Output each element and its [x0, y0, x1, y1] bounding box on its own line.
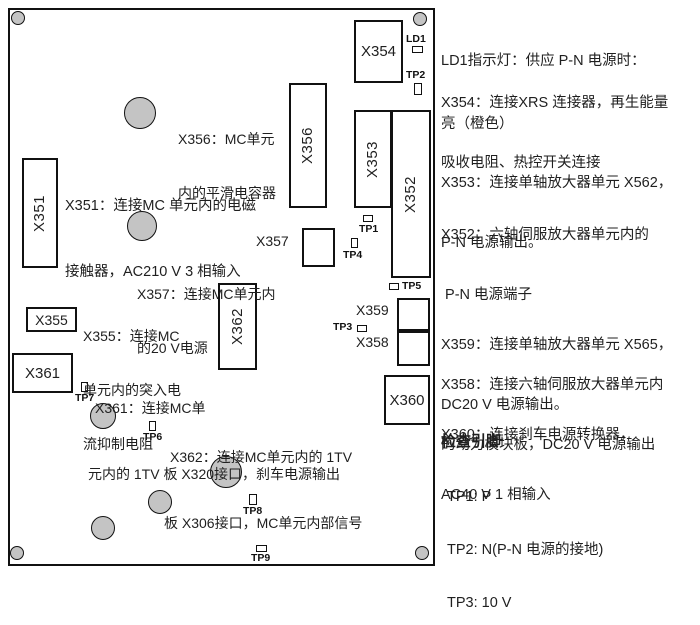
tp1-label: TP1: [359, 223, 378, 235]
tp2-marker: [414, 83, 422, 95]
connector-label: X355: [35, 312, 68, 328]
connector-x359-label: X359: [356, 302, 389, 318]
connector-label: X353: [365, 140, 382, 177]
connector-label: X354: [361, 43, 396, 60]
check-pins-list: TP1: P TP2: N(P-N 电源的接地) TP3: 10 V TP4: …: [447, 453, 603, 625]
connector-x352: X352: [391, 110, 431, 278]
connector-label: X361: [25, 365, 60, 382]
connector-label: X360: [389, 392, 424, 409]
tp3-label: TP3: [333, 321, 352, 333]
connector-x358: [397, 331, 430, 366]
tp1-marker: [363, 215, 373, 222]
check-pin-item: TP1: P: [447, 489, 603, 507]
mounting-hole-bottom-right: [415, 546, 429, 560]
connector-x357: [302, 228, 335, 267]
note-x362: X362：连接MC单元内的 1TV 板 X306接口，MC单元内部信号: [164, 402, 362, 578]
connector-x356: X356: [289, 83, 327, 208]
tp5-marker: [389, 283, 399, 290]
capacitor-circle: [124, 97, 156, 129]
tp4-marker: [351, 238, 358, 248]
connector-label: X352: [403, 175, 420, 212]
tp4-label: TP4: [343, 249, 362, 261]
ld1-label: LD1: [406, 33, 426, 45]
tp3-marker: [357, 325, 367, 332]
connector-x351: X351: [22, 158, 58, 268]
check-pin-item: TP2: N(P-N 电源的接地): [447, 542, 603, 560]
connector-x358-label: X358: [356, 334, 389, 350]
mc-unit-board-diagram: X354 X356 X353 X352 X351 X355 X362 X361 …: [0, 0, 700, 625]
connector-x361: X361: [12, 353, 73, 393]
connector-x359: [397, 298, 430, 331]
connector-x353: X353: [354, 110, 392, 208]
check-pin-item: TP3: 10 V: [447, 595, 603, 613]
mounting-hole-top-left: [11, 11, 25, 25]
connector-label: X351: [32, 194, 49, 231]
ld1-led-marker: [412, 46, 423, 53]
connector-x360: X360: [384, 375, 430, 425]
check-pins-heading: 检查引脚: [441, 430, 501, 451]
mounting-hole-top-right: [413, 12, 427, 26]
tp2-label: TP2: [406, 69, 425, 81]
connector-label: X356: [300, 127, 317, 164]
connector-x354: X354: [354, 20, 403, 83]
mounting-hole-bottom-left: [10, 546, 24, 560]
tp5-label: TP5: [402, 280, 421, 292]
